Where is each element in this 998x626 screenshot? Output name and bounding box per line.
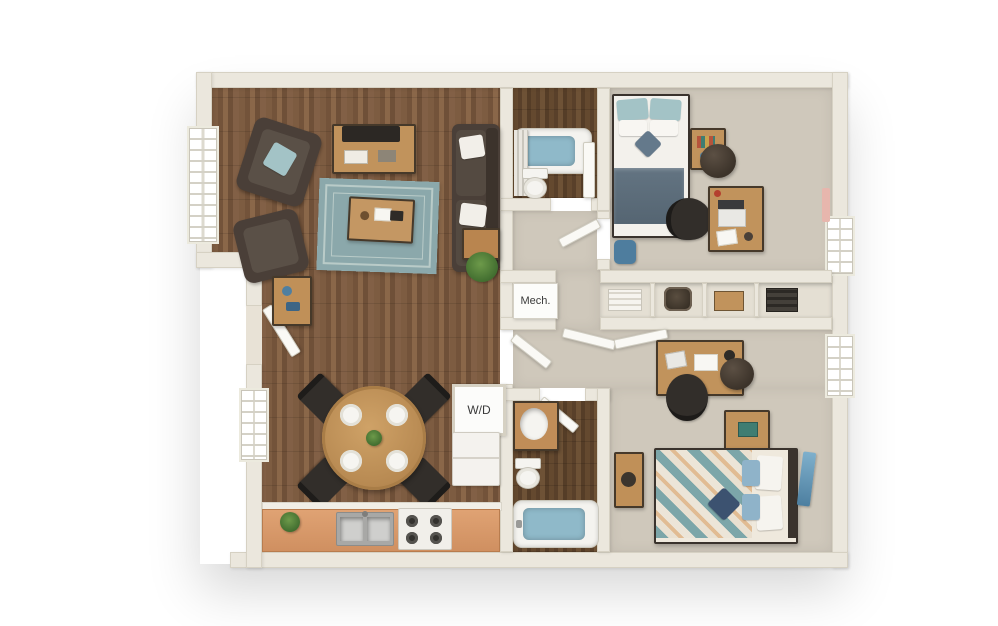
entry-window: [241, 390, 267, 460]
sink-faucet: [362, 511, 368, 517]
bathroom-2-tub: [513, 500, 599, 548]
bedroom-1-wall-art: [822, 188, 830, 222]
bench-decor: [621, 472, 636, 487]
coffee-table: [347, 196, 415, 243]
refrigerator: [452, 432, 500, 486]
bed1-door-wall-a: [597, 211, 610, 219]
closet-divider-2: [702, 283, 707, 317]
counter-plant: [280, 512, 300, 532]
desk1-laptop-screen: [718, 200, 744, 209]
nightstand-2-book: [738, 422, 758, 437]
washer-dryer-closet: W/D: [452, 384, 506, 436]
entry-decor-vase: [282, 286, 292, 296]
living-room-window: [189, 128, 217, 242]
tv: [342, 126, 400, 142]
bedroom-1-office-chair: [666, 198, 711, 240]
bed2-comforter: [656, 450, 752, 538]
bathroom-1-door-leaf: [583, 142, 595, 198]
bathroom-2-toilet-bowl: [516, 467, 540, 489]
bedroom-1-pouf: [700, 144, 736, 178]
bed2-headboard: [788, 450, 796, 538]
media-console: [332, 124, 416, 174]
bed2-blue-pillow-2: [742, 494, 760, 520]
bed2-blue-pillow-1: [742, 460, 760, 486]
bed1-white-pillow-2: [650, 120, 678, 136]
bath1-bottom-wall-a: [500, 198, 551, 211]
linen-stack: [608, 289, 642, 311]
bedroom-2-office-chair: [666, 374, 708, 421]
closet-corridor-floor: [556, 270, 600, 330]
entry-decor-dish: [286, 302, 300, 311]
place-setting-1: [340, 404, 362, 426]
bedroom-1-duffel-bag: [614, 240, 636, 264]
entry-threshold: [246, 306, 262, 364]
closet-divider-3: [754, 283, 759, 317]
console-decor: [344, 150, 368, 164]
place-setting-4: [386, 450, 408, 472]
kitchen-sink: [336, 512, 394, 546]
closet-top-wall-a: [500, 270, 556, 283]
sofa-pillow-1: [458, 134, 485, 159]
floor-plant: [466, 252, 498, 282]
bathroom-2-vanity: [513, 401, 559, 451]
floor-plan-canvas: Mech.: [0, 0, 998, 626]
bed1-door-wall-b: [597, 259, 610, 270]
sofa-pillow-2: [459, 202, 487, 227]
desk2-calculator: [665, 350, 687, 369]
bedroom-1-desk: [708, 186, 764, 252]
bathroom-1-toilet-bowl: [523, 177, 547, 199]
desk1-laptop-base: [718, 209, 746, 227]
wall-right: [832, 72, 848, 568]
bed1-blue-pillow-1: [616, 98, 649, 122]
bed1-blue-pillow-2: [649, 98, 681, 121]
mechanical-closet-label: Mech.: [521, 295, 551, 307]
hall-alcove-floor: [513, 211, 597, 270]
place-setting-3: [340, 450, 362, 472]
bedroom-2-window: [827, 336, 853, 396]
closet-divider-1: [650, 283, 655, 317]
mechanical-closet-door: Mech.: [513, 283, 558, 319]
closet-top-wall-b: [600, 270, 832, 283]
washer-dryer-label: W/D: [467, 403, 490, 417]
woven-basket: [664, 287, 692, 311]
dining-table: [322, 386, 426, 490]
kitchen-range: [398, 508, 452, 550]
closet-bottom-wall-b: [600, 317, 832, 330]
bedroom-2-pouf: [720, 358, 754, 390]
bathroom-2-tub-faucet: [516, 520, 522, 528]
bedroom-2-bench: [614, 452, 644, 508]
bathroom-2-tub-water: [523, 508, 585, 540]
desk2-paper: [694, 354, 718, 371]
bedroom-2-nightstand: [724, 410, 770, 450]
wall-top: [196, 72, 848, 88]
book-stacks: [766, 288, 798, 312]
desk1-paper: [716, 229, 738, 247]
bedroom-2-bed: [654, 448, 798, 544]
wall-bottom: [230, 552, 848, 568]
place-setting-2: [386, 404, 408, 426]
table-centerpiece: [366, 430, 382, 446]
bathroom-2-sink: [520, 408, 548, 440]
bath2-top-wall-a: [500, 388, 540, 401]
bedroom-1-window: [827, 218, 853, 274]
entry-console: [272, 276, 312, 326]
bath1-right-wall: [597, 88, 610, 211]
desk1-mug: [744, 232, 753, 241]
desk1-apple: [714, 190, 721, 197]
coffee-table-bowl: [360, 211, 369, 220]
coffee-table-tablet: [390, 210, 404, 221]
console-decor-2: [378, 150, 396, 162]
storage-box: [714, 291, 744, 311]
bathroom-1-tub-water: [523, 136, 575, 166]
coffee-table-papers: [374, 208, 392, 222]
